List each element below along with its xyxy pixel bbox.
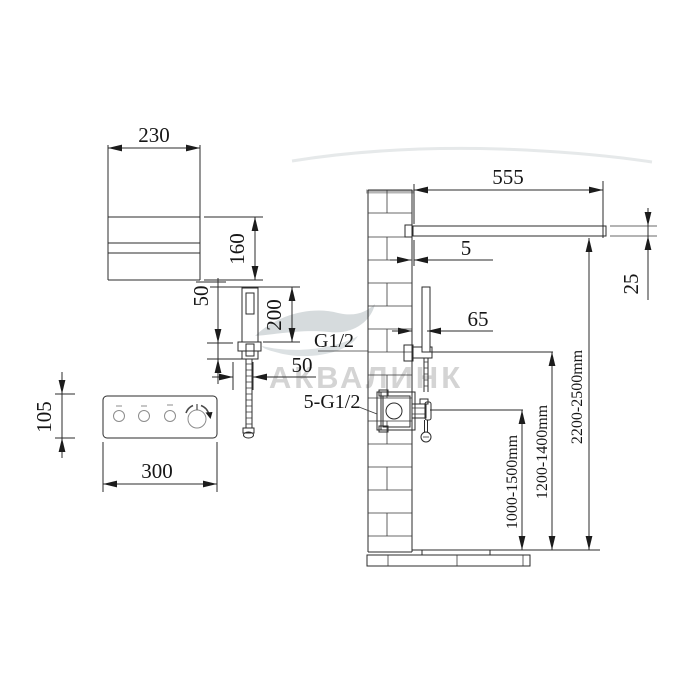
wall-spout <box>405 225 657 237</box>
dim-25: 25 <box>619 208 651 300</box>
dim-555-label: 555 <box>492 165 524 189</box>
dim-105: 105 <box>32 372 75 458</box>
dim-65-label: 65 <box>468 307 489 331</box>
dim-5: 5 <box>390 236 493 266</box>
dim-50-holder-label: 50 <box>189 286 213 307</box>
dim-300-label: 300 <box>141 459 173 483</box>
control-panel-view <box>103 396 217 438</box>
overhead-spout-view <box>108 145 200 280</box>
technical-drawing: АКВАЛИНК 230 160 200 50 <box>0 0 700 700</box>
dim-1000-1500-label: 1000-1500mm <box>504 434 521 529</box>
panel-button <box>165 411 176 422</box>
hand-shower-view <box>238 288 261 438</box>
dim-2200-2500-label: 2200-2500mm <box>569 349 586 444</box>
5-g12-text: 5-G1/2 <box>304 391 361 413</box>
dim-5-label: 5 <box>461 236 472 260</box>
dim-200-label: 200 <box>262 299 286 331</box>
dim-105-label: 105 <box>32 401 56 433</box>
dim-160: 160 <box>204 217 263 280</box>
dim-230-label: 230 <box>138 123 170 147</box>
dim-50-holder: 50 <box>189 278 250 384</box>
panel-knob <box>186 404 213 428</box>
dim-2200-2500: 2200-2500mm <box>569 238 592 550</box>
watermark-swoosh <box>255 148 652 356</box>
panel-button <box>139 411 150 422</box>
dim-50-hose-label: 50 <box>292 353 313 377</box>
panel-button <box>114 411 125 422</box>
outlet-screw <box>421 420 431 442</box>
dim-25-label: 25 <box>619 274 643 295</box>
g12-text: G1/2 <box>314 330 354 352</box>
panel-button-marks <box>116 405 173 406</box>
dim-200: 200 <box>210 287 300 342</box>
dim-1200-1400-label: 1200-1400mm <box>534 404 551 499</box>
dim-160-label: 160 <box>225 233 249 265</box>
dim-65: 65 <box>392 307 493 334</box>
dim-300: 300 <box>103 442 217 492</box>
label-g12: G1/2 <box>314 330 368 352</box>
dim-1000-1500: 1000-1500mm <box>430 410 525 550</box>
dim-555: 555 <box>414 165 603 238</box>
dim-230: 230 <box>108 123 200 151</box>
hose-texture <box>246 364 252 424</box>
